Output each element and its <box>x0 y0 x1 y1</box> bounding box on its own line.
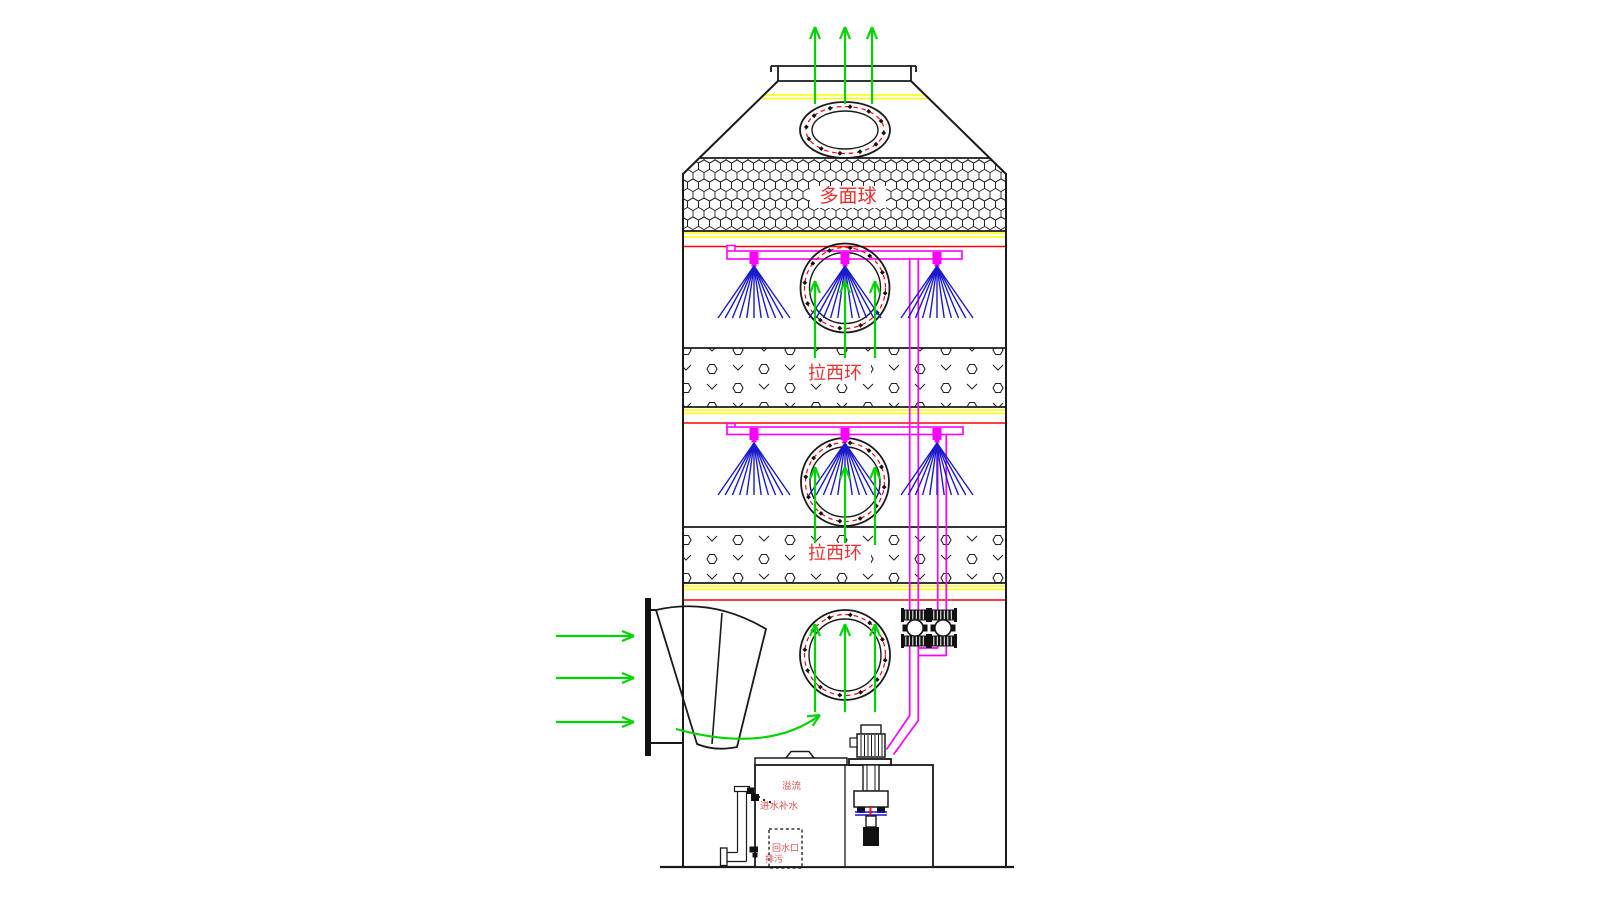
drain-valve <box>750 847 759 853</box>
manhole-bolt <box>866 109 871 114</box>
valve-stem <box>903 625 908 632</box>
manhole-top-ellipse <box>800 102 890 158</box>
makeup-water-label: 进水补水 <box>760 802 798 813</box>
spray-jet <box>845 266 859 318</box>
manhole-bolt <box>858 516 863 521</box>
manhole-bolt <box>806 495 811 500</box>
spray-fan <box>901 443 973 495</box>
liquid-piping <box>887 258 947 755</box>
manhole-bolt <box>837 326 842 331</box>
spray-fan <box>901 266 973 318</box>
manhole-bolt <box>881 131 886 136</box>
pump-base-plate <box>849 759 891 765</box>
overflow-label: 溢流 <box>782 782 801 793</box>
pump-column <box>863 765 879 791</box>
manhole-bolt <box>827 443 832 448</box>
spray-jet <box>908 443 937 495</box>
ball-valve <box>901 608 929 648</box>
nozzle-body <box>933 252 942 264</box>
manhole-bolt <box>805 301 810 306</box>
spray-jet <box>908 266 937 318</box>
spray-jet <box>725 443 754 495</box>
ball-valves <box>901 608 957 648</box>
valve-stem <box>931 625 936 632</box>
valve-flange-plate <box>926 608 929 622</box>
sump-tank <box>721 752 934 869</box>
manhole-bolt <box>803 474 808 479</box>
gas-inlet-arrow <box>556 717 634 727</box>
spray-jet <box>754 266 783 318</box>
manhole-bolt <box>880 637 885 642</box>
nozzle-tip <box>843 440 848 443</box>
valve-ball <box>907 620 923 636</box>
manhole-bolt <box>848 440 853 445</box>
nozzle-body <box>750 252 759 264</box>
spray-jet <box>831 266 845 318</box>
manhole-bolt <box>804 125 809 130</box>
manhole-bolt <box>802 647 807 652</box>
pump-shaft <box>866 816 876 827</box>
motor-cap <box>861 725 881 734</box>
nozzle-body <box>841 252 850 264</box>
manhole-bolt <box>827 615 832 620</box>
valve-flange-plate <box>954 608 957 622</box>
manhole-bolt <box>805 668 810 673</box>
manhole-bolt <box>848 612 853 617</box>
spray-jet <box>937 443 951 495</box>
valve-flange-plate <box>901 634 904 648</box>
manhole-bolt <box>828 106 833 111</box>
packing-label-bottom: 拉西环 <box>799 543 871 564</box>
valve-flange <box>932 636 954 646</box>
manhole-bolt <box>837 693 842 698</box>
manhole-bolt <box>858 323 863 328</box>
spray-fan <box>718 266 790 318</box>
manhole-bolt <box>879 464 884 469</box>
spray-jet <box>754 266 768 318</box>
spray-jet <box>923 266 937 318</box>
spray-fan <box>718 443 790 495</box>
spray-jet <box>740 266 754 318</box>
motor-junction-box <box>850 738 857 747</box>
valve-flange-plate <box>926 634 929 648</box>
valve-flange <box>904 636 926 646</box>
manhole-bolt <box>838 151 843 156</box>
valve-stem <box>923 625 928 632</box>
overflow-fitting <box>747 788 754 795</box>
pump-housing <box>854 791 888 807</box>
manhole-bolt <box>858 149 863 154</box>
valve-flange-plate <box>929 608 932 622</box>
nozzle-tip <box>752 440 757 443</box>
spray-jet <box>923 443 937 495</box>
manhole-bolt <box>819 146 824 151</box>
inlet-flange <box>645 598 651 756</box>
spray-jet <box>740 443 754 495</box>
spray-jet <box>937 266 966 318</box>
manhole-bolt <box>848 104 853 109</box>
diagram-canvas: 多面球 拉西环 拉西环 溢流 进水补水 回水口 排污 <box>0 0 1600 900</box>
valve-flange <box>904 610 926 620</box>
motor-fins <box>861 735 882 756</box>
drain-label: 排污 <box>765 854 783 864</box>
spray-jet <box>845 443 859 495</box>
valve-flange-plate <box>954 634 957 648</box>
packing-label-mid: 拉西环 <box>799 363 871 384</box>
gas-up-arrow <box>870 281 880 358</box>
manhole-bolt <box>883 291 888 296</box>
packing-label-top: 多面球 <box>810 186 886 208</box>
manhole-bolt <box>882 485 887 490</box>
spray-jet <box>754 443 768 495</box>
tank-lid-handle <box>786 752 814 759</box>
gas-inlet-duct <box>645 598 766 756</box>
gas-up-arrow <box>840 624 850 712</box>
spray-jet <box>937 443 966 495</box>
manhole-bolt <box>880 270 885 275</box>
manhole-bolt <box>802 280 807 285</box>
valve-flange-plate <box>901 608 904 622</box>
valve-flange <box>932 610 954 620</box>
gas-inlet-arrow <box>556 673 634 683</box>
nozzle-body <box>750 428 759 440</box>
spray-jet <box>754 443 783 495</box>
nozzle-body <box>841 428 850 440</box>
spray-jet <box>937 266 951 318</box>
valve-flange-plate <box>929 634 932 648</box>
ball-valve <box>929 608 957 648</box>
manhole-bolt <box>837 519 842 524</box>
pump-discharge-pipe <box>894 646 919 755</box>
pump-suction <box>863 827 879 846</box>
spray-tower-diagram <box>0 0 1600 900</box>
valve-ball <box>935 620 951 636</box>
manhole-bolt <box>883 658 888 663</box>
spray-jet <box>831 443 845 495</box>
inlet-deflector <box>656 606 766 748</box>
manhole-bolt <box>858 690 863 695</box>
tank-lid <box>755 758 847 765</box>
spray-jet <box>725 266 754 318</box>
return-port-label: 回水口 <box>772 843 799 853</box>
drain-flange <box>721 848 728 866</box>
valve-stem <box>951 625 956 632</box>
gas-inlet-arrow <box>556 631 634 641</box>
gas-up-arrow <box>810 281 820 358</box>
